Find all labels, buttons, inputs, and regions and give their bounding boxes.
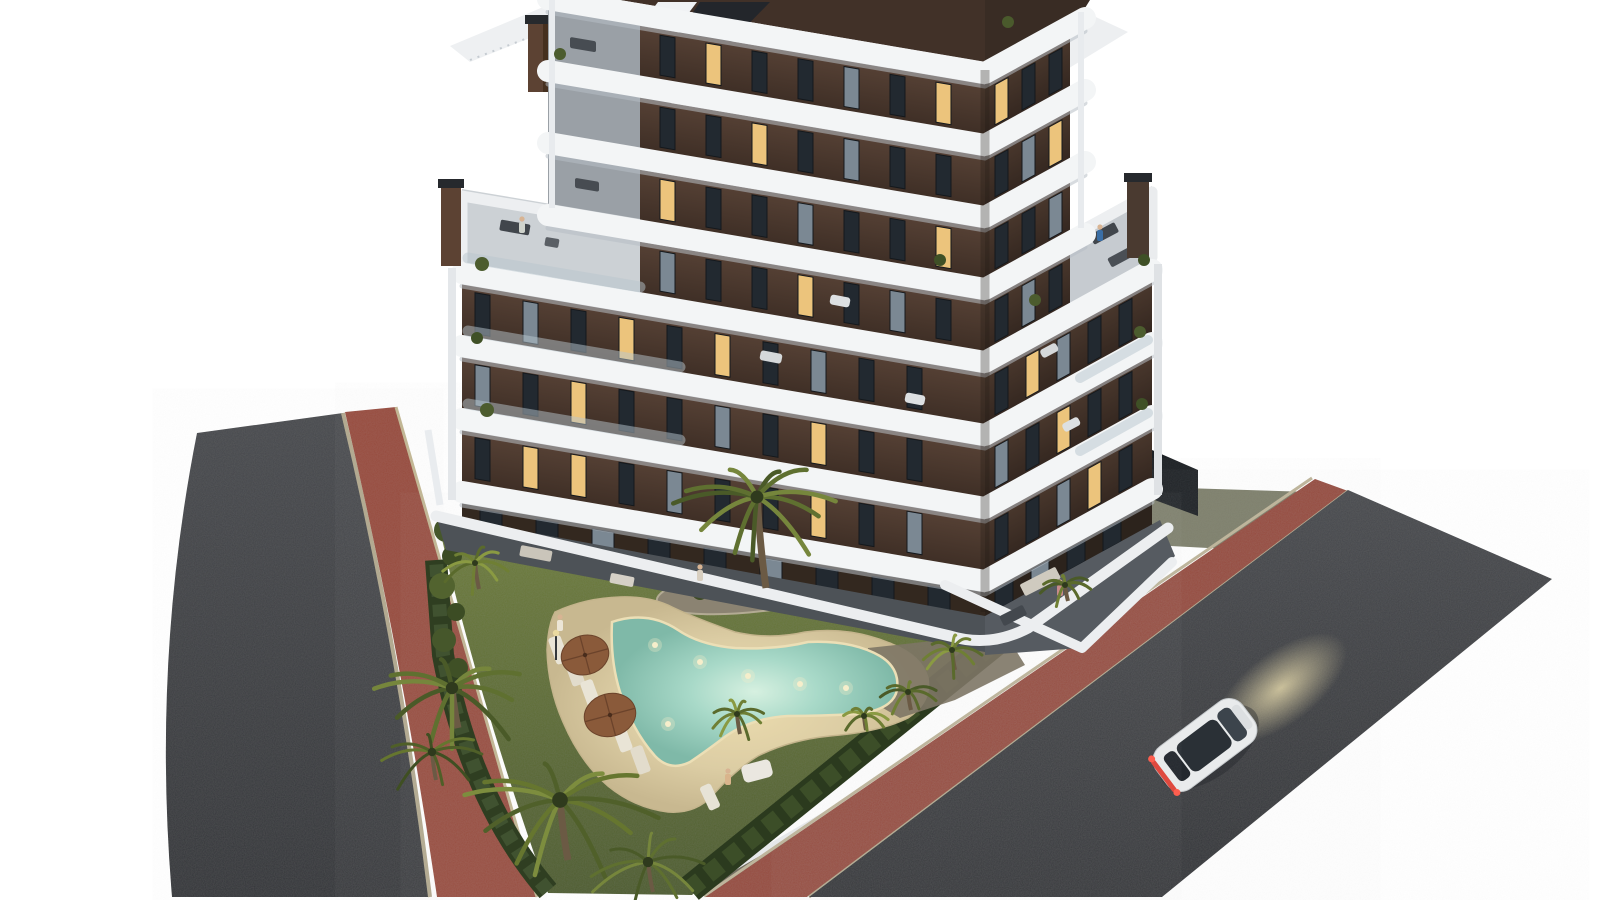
window: [859, 503, 874, 547]
balcony-plant-4: [1138, 254, 1150, 266]
window: [890, 290, 905, 333]
window: [798, 275, 813, 318]
window: [1088, 388, 1101, 436]
person-head: [1097, 224, 1102, 229]
palm-crown: [905, 689, 911, 695]
person-ground-left: [697, 564, 703, 581]
pool-light-2: [697, 659, 703, 665]
person-head: [725, 768, 730, 773]
balcony-plant-8: [934, 254, 946, 266]
window: [660, 107, 675, 150]
window: [844, 139, 859, 182]
window: [571, 454, 586, 498]
balcony-plant-3: [480, 403, 494, 417]
window: [1119, 371, 1132, 419]
window: [715, 406, 730, 450]
window: [667, 470, 682, 514]
window: [660, 251, 675, 294]
window: [752, 51, 767, 94]
window: [936, 154, 951, 197]
window: [619, 462, 634, 506]
window: [907, 511, 922, 555]
window: [798, 203, 813, 246]
window: [660, 179, 675, 222]
window: [1022, 135, 1035, 182]
window: [936, 82, 951, 125]
window: [706, 43, 721, 86]
window: [706, 187, 721, 230]
balcony-plant-6: [1136, 398, 1148, 410]
person-head: [697, 564, 702, 569]
window: [890, 146, 905, 189]
person-body: [557, 620, 563, 631]
window: [1088, 461, 1101, 509]
window: [1088, 315, 1101, 363]
window: [1057, 479, 1070, 527]
window: [1049, 120, 1062, 167]
person-head: [557, 614, 562, 619]
window: [706, 259, 721, 302]
window: [1049, 48, 1062, 95]
pool-light-5: [843, 685, 849, 691]
balcony-plant-2: [471, 332, 483, 344]
window: [907, 438, 922, 482]
right-chimney: [1127, 180, 1149, 258]
window: [1049, 192, 1062, 239]
person-pool-sitting: [725, 768, 731, 785]
palm-crown: [734, 711, 740, 717]
window: [995, 222, 1008, 269]
palm-crown: [446, 682, 458, 694]
window: [763, 342, 778, 386]
person-body: [697, 570, 703, 581]
palm-crown: [751, 491, 764, 504]
window: [763, 414, 778, 458]
pool-light-3: [745, 673, 751, 679]
window: [995, 294, 1008, 342]
pool-light-4: [797, 681, 803, 687]
window: [859, 430, 874, 474]
window: [1057, 333, 1070, 381]
person-left-terrace: [519, 216, 525, 233]
palm-crown: [949, 647, 955, 653]
west-boundary-fence: [428, 430, 440, 505]
window: [995, 367, 1008, 415]
window: [1049, 264, 1062, 312]
window: [798, 131, 813, 174]
window: [1022, 207, 1035, 254]
palm-crown: [861, 713, 867, 719]
window: [844, 211, 859, 254]
person-body: [1097, 230, 1103, 241]
window: [995, 440, 1008, 488]
balcony-plant-7: [554, 48, 566, 60]
window: [1119, 444, 1132, 492]
palm-crown: [472, 560, 478, 566]
person-body: [725, 774, 731, 785]
person-head: [519, 216, 524, 221]
right-chimney-cap: [1124, 173, 1152, 182]
left-chimney-cap: [438, 179, 464, 188]
northwest-bush-5: [432, 628, 456, 652]
person-body: [519, 222, 525, 233]
window: [1026, 423, 1039, 471]
person-right-terrace: [1097, 224, 1103, 241]
window: [715, 334, 730, 378]
window: [995, 150, 1008, 197]
window: [1026, 350, 1039, 398]
palm-frond: [952, 650, 954, 678]
window: [706, 115, 721, 158]
window: [752, 267, 767, 310]
palm-crown: [643, 857, 653, 867]
northwest-bush-4: [447, 603, 465, 621]
window: [811, 422, 826, 466]
balcony-plant-9: [1029, 294, 1041, 306]
palm-crown: [552, 792, 568, 808]
roof-plant-1: [1002, 16, 1014, 28]
left-chimney: [441, 186, 461, 266]
pool-light-1: [652, 642, 658, 648]
architectural-render-viewport: [0, 0, 1600, 900]
window: [844, 67, 859, 110]
scene-svg: [0, 0, 1600, 900]
balcony-plant-1: [475, 257, 489, 271]
palm-crown: [428, 748, 436, 756]
window: [1026, 496, 1039, 544]
window: [859, 358, 874, 402]
window: [660, 35, 675, 78]
window: [752, 123, 767, 166]
window: [475, 438, 490, 482]
window: [890, 218, 905, 261]
window: [936, 298, 951, 341]
balcony-plant-5: [1134, 326, 1146, 338]
palm-crown: [1062, 582, 1068, 588]
window: [995, 513, 1008, 561]
window: [798, 59, 813, 102]
window: [523, 446, 538, 490]
person-poolside-standing: [557, 614, 563, 631]
window: [811, 350, 826, 394]
window: [1119, 298, 1132, 346]
window: [752, 195, 767, 238]
window: [890, 74, 905, 117]
window: [1022, 63, 1035, 110]
pool-light-6: [665, 721, 671, 727]
window: [995, 78, 1008, 125]
